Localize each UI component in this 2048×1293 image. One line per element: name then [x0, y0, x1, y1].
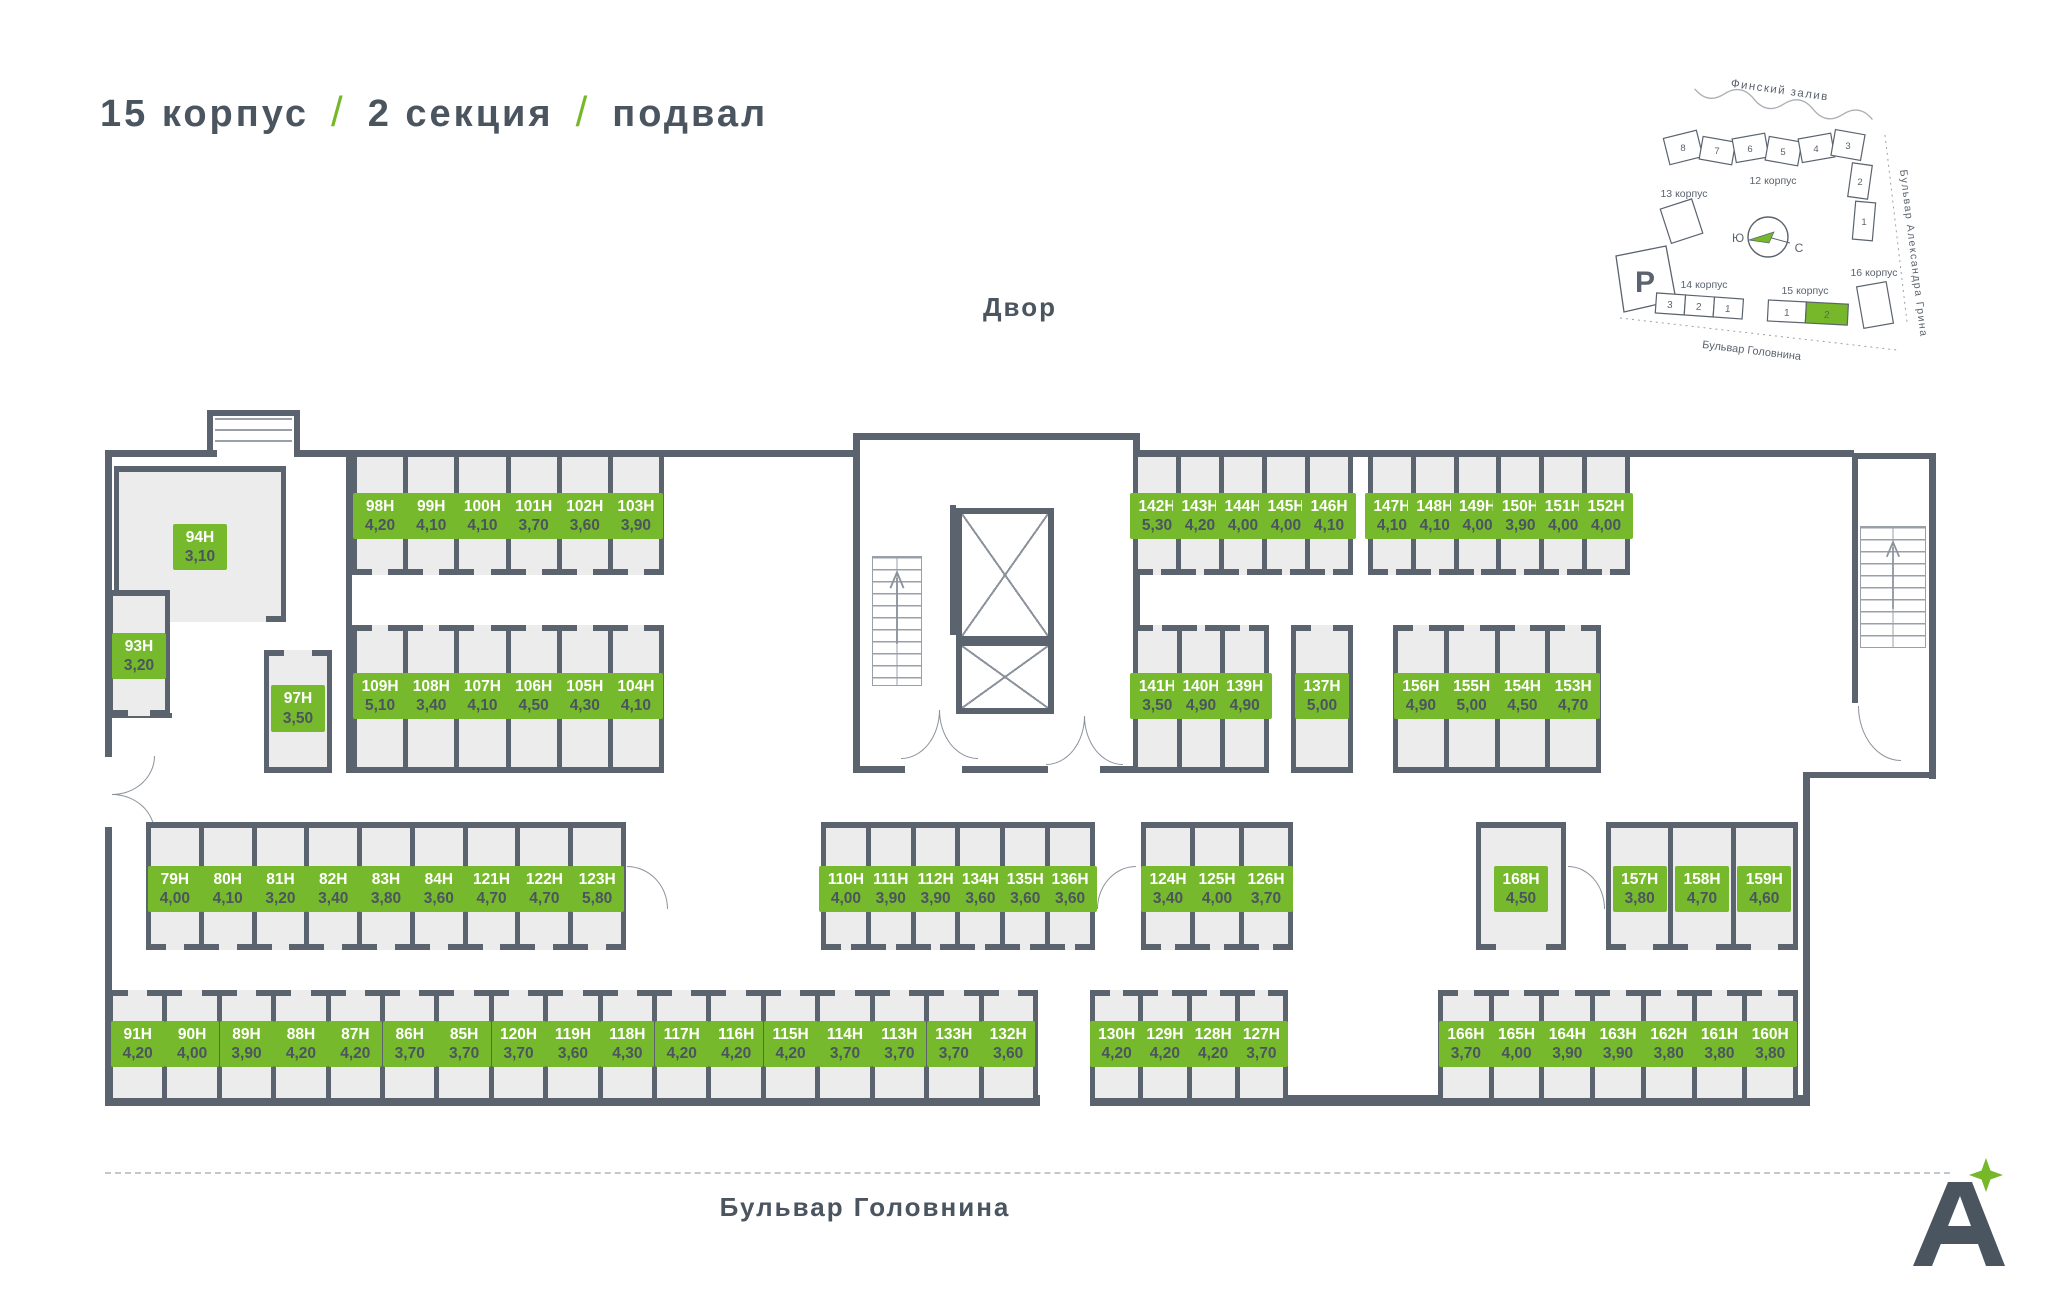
storage-room[interactable]: 101Н3,70 [511, 457, 562, 575]
door-arc [939, 710, 978, 759]
room-tag: 81Н3,20 [253, 866, 307, 913]
room-group-156-153: 156Н4,90155Н5,00154Н4,50153Н4,70 [1393, 625, 1601, 773]
storage-room[interactable]: 83Н3,80 [362, 828, 415, 950]
room-tag: 80Н4,10 [201, 866, 255, 913]
logo-letter-a [1913, 1182, 2005, 1266]
room-tag: 161Н3,80 [1692, 1021, 1746, 1068]
storage-room[interactable]: 90Н4,00 [167, 990, 221, 1098]
room-group-109-104: 109Н5,10108Н3,40107Н4,10106Н4,50105Н4,30… [352, 625, 664, 773]
storage-room[interactable]: 80Н4,10 [204, 828, 257, 950]
storage-room[interactable]: 79Н4,00 [151, 828, 204, 950]
room-group-124-126: 124Н3,40125Н4,00126Н3,70 [1141, 822, 1293, 950]
room-tag: 158Н4,70 [1675, 866, 1729, 913]
storage-room[interactable]: 139Н4,90 [1225, 625, 1264, 767]
room-tag: 86Н3,70 [383, 1021, 437, 1068]
title-floor: подвал [612, 93, 768, 135]
room-tag: 105Н4,30 [558, 673, 612, 720]
room-tag: 164Н3,90 [1540, 1021, 1594, 1068]
building-12-label: 12 корпус [1749, 175, 1796, 187]
storage-room[interactable]: 154Н4,50 [1500, 625, 1551, 767]
room-tag: 168Н4,50 [1494, 866, 1548, 913]
room-tag: 99Н4,10 [404, 493, 458, 540]
storage-room[interactable]: 109Н5,10 [357, 625, 408, 767]
room-tag: 128Н4,20 [1186, 1021, 1240, 1068]
developer-logo [1910, 1158, 2020, 1273]
door-arc [627, 866, 668, 909]
room-tag: 83Н3,80 [359, 866, 413, 913]
courtyard-label: Двор [955, 292, 1085, 323]
room-tag: 155Н5,00 [1445, 673, 1499, 720]
room-tag: 132Н3,60 [981, 1021, 1035, 1068]
vestibule-wall [207, 410, 300, 416]
wall-segment [1803, 778, 1810, 1105]
compass-south: Ю [1732, 231, 1744, 245]
building-14-label: 14 корпус [1680, 279, 1727, 291]
room-tag: 91Н4,20 [111, 1021, 165, 1068]
minimap-section-1-number: 1 [1784, 308, 1791, 319]
storage-room[interactable]: 119Н3,60 [548, 990, 602, 1098]
core-wall [860, 766, 905, 773]
storage-room[interactable]: 136Н3,60 [1050, 828, 1090, 950]
room-tag: 101Н3,70 [507, 493, 561, 540]
storage-room[interactable]: 114Н3,70 [820, 990, 874, 1098]
room-tag: 159Н4,60 [1737, 866, 1791, 913]
storage-room[interactable]: 102Н3,60 [562, 457, 613, 575]
room-tag: 107Н4,10 [455, 673, 509, 720]
storage-room[interactable]: 160Н3,80 [1747, 990, 1793, 1098]
room-group-79-123: 79Н4,0080Н4,1081Н3,2082Н3,4083Н3,8084Н3,… [146, 822, 626, 950]
room-tag: 115Н4,20 [764, 1021, 818, 1068]
storage-room[interactable]: 107Н4,10 [459, 625, 510, 767]
site-plan-minimap[interactable]: Финский залив 8 7 6 5 4 3 2 1 12 корпус … [1602, 60, 2038, 375]
room-group-142-146: 142Н5,30143Н4,20144Н4,00145Н4,00146Н4,10 [1133, 457, 1353, 575]
room-168: 168Н4,50 [1476, 822, 1566, 950]
core-wall [853, 433, 860, 773]
storage-room[interactable]: 124Н3,40 [1146, 828, 1195, 950]
room-tag: 98Н4,20 [353, 493, 407, 540]
svg-text:4: 4 [1813, 144, 1818, 155]
room-tag: 137Н5,00 [1295, 673, 1349, 720]
svg-text:8: 8 [1680, 143, 1685, 154]
room-tag: 136Н3,60 [1043, 866, 1097, 913]
room-tag: 113Н3,70 [872, 1021, 926, 1068]
room-tag: 82Н3,40 [306, 866, 360, 913]
street-dashed-line [105, 1172, 1950, 1174]
entrance-steps [215, 418, 292, 450]
storage-room[interactable]: 103Н3,90 [613, 457, 659, 575]
room-tag: 123Н5,80 [570, 866, 624, 913]
storage-room[interactable]: 100Н4,10 [459, 457, 510, 575]
room-tag: 160Н3,80 [1743, 1021, 1797, 1068]
storage-room[interactable]: 115Н4,20 [766, 990, 820, 1098]
title-separator: / [576, 88, 591, 135]
storage-room[interactable]: 116Н4,20 [711, 990, 765, 1098]
blvd-golovnina-minimap-label: Бульвар Головнина [1702, 339, 1803, 363]
door-arc [112, 756, 155, 795]
svg-text:3: 3 [1845, 141, 1850, 152]
storage-room[interactable]: 163Н3,90 [1595, 990, 1646, 1098]
floorplan-page: 15 корпус/2 секция/подвал Двор Финский з… [0, 0, 2048, 1293]
room-tag: 106Н4,50 [507, 673, 561, 720]
door-arc [1084, 716, 1123, 765]
room-tag: 103Н3,90 [609, 493, 663, 540]
street-label: Бульвар Головнина [640, 1192, 1090, 1223]
storage-room[interactable]: 123Н5,80 [573, 828, 621, 950]
storage-room[interactable]: 133Н3,70 [929, 990, 983, 1098]
storage-room[interactable]: 120Н3,70 [494, 990, 548, 1098]
building-13 [1660, 199, 1703, 243]
door-arc [901, 710, 940, 759]
building-14: 3 2 1 [1655, 293, 1743, 319]
storage-room[interactable]: 113Н3,70 [875, 990, 929, 1098]
svg-text:1: 1 [1861, 217, 1866, 228]
room-tag: 97Н3,50 [271, 685, 325, 732]
logo-star-icon [1969, 1158, 2003, 1192]
building-16-label: 16 корпус [1850, 267, 1897, 279]
door-arc [1097, 866, 1136, 909]
page-title: 15 корпус/2 секция/подвал [100, 88, 768, 136]
storage-room[interactable]: 118Н4,30 [603, 990, 657, 1098]
room-93: 93Н3,20 [108, 590, 170, 716]
storage-room[interactable]: 117Н4,20 [657, 990, 711, 1098]
parking-label: P [1635, 266, 1655, 299]
storage-room[interactable]: 121Н4,70 [468, 828, 521, 950]
room-tag: 127Н3,70 [1234, 1021, 1288, 1068]
room-tag: 154Н4,50 [1495, 673, 1549, 720]
svg-text:6: 6 [1747, 144, 1752, 155]
door-arc [1568, 866, 1605, 909]
storage-room[interactable]: 157Н3,80 [1611, 828, 1673, 950]
storage-room[interactable]: 152Н4,00 [1587, 457, 1625, 575]
stair-shaft-wall [1852, 453, 1935, 459]
storage-room[interactable]: 91Н4,20 [113, 990, 167, 1098]
minimap-section-2-number: 2 [1824, 310, 1831, 321]
storage-room[interactable]: 146Н4,10 [1310, 457, 1348, 575]
core-wall [962, 766, 1048, 773]
room-tag: 130Н4,20 [1090, 1021, 1144, 1068]
svg-text:2: 2 [1857, 177, 1862, 188]
storage-room[interactable]: 84Н3,60 [415, 828, 468, 950]
storage-room[interactable]: 89Н3,90 [222, 990, 276, 1098]
storage-room[interactable]: 98Н4,20 [357, 457, 408, 575]
right-staircase [1860, 526, 1926, 648]
room-group-110-136: 110Н4,00111Н3,90112Н3,90134Н3,60135Н3,60… [821, 822, 1095, 950]
room-tag: 139Н4,90 [1218, 673, 1272, 720]
room-tag: 85Н3,70 [437, 1021, 491, 1068]
room-97: 97Н3,50 [264, 650, 332, 773]
room-tag: 109Н5,10 [353, 673, 407, 720]
storage-room[interactable]: 129Н4,20 [1143, 990, 1191, 1098]
room-tag: 87Н4,20 [328, 1021, 382, 1068]
elevator-shaft [956, 508, 1054, 642]
room-group-98-103: 98Н4,2099Н4,10100Н4,10101Н3,70102Н3,6010… [352, 457, 664, 575]
room-tag: 122Н4,70 [517, 866, 571, 913]
storage-room[interactable]: 161Н3,80 [1697, 990, 1748, 1098]
storage-room[interactable]: 130Н4,20 [1095, 990, 1143, 1098]
wall-segment [105, 450, 217, 457]
room-tag: 102Н3,60 [558, 493, 612, 540]
storage-room[interactable]: 81Н3,20 [257, 828, 310, 950]
storage-room[interactable]: 164Н3,90 [1544, 990, 1595, 1098]
building-16 [1857, 282, 1894, 329]
room-tag: 156Н4,90 [1394, 673, 1448, 720]
building-15-label: 15 корпус [1781, 285, 1828, 297]
room-tag: 119Н3,60 [546, 1021, 600, 1068]
room-tag: 88Н4,20 [274, 1021, 328, 1068]
room-tag: 104Н4,10 [609, 673, 663, 720]
storage-room[interactable]: 166Н3,70 [1443, 990, 1494, 1098]
room-group-130-127: 130Н4,20129Н4,20128Н4,20127Н3,70 [1090, 990, 1288, 1098]
vestibule-wall [207, 410, 213, 457]
room-group-166-160: 166Н3,70165Н4,00164Н3,90163Н3,90162Н3,80… [1438, 990, 1798, 1098]
room-tag: 93Н3,20 [112, 633, 166, 680]
storage-room[interactable]: 153Н4,70 [1550, 625, 1596, 767]
blvd-grina-label: Бульвар Александра Грина [1897, 169, 1930, 338]
room-tag: 100Н4,10 [455, 493, 509, 540]
storage-room[interactable]: 86Н3,70 [385, 990, 439, 1098]
storage-room[interactable]: 155Н5,00 [1449, 625, 1500, 767]
storage-room[interactable]: 93Н3,20 [113, 596, 165, 716]
room-group-91-132: 91Н4,2090Н4,0089Н3,9088Н4,2087Н4,2086Н3,… [108, 990, 1038, 1098]
storage-room[interactable]: 99Н4,10 [408, 457, 459, 575]
storage-room[interactable]: 132Н3,60 [984, 990, 1033, 1098]
building-13-label: 13 корпус [1660, 188, 1707, 200]
storage-room[interactable]: 168Н4,50 [1481, 828, 1561, 950]
core-wall [853, 433, 1140, 440]
storage-room[interactable]: 165Н4,00 [1494, 990, 1545, 1098]
gulf-label: Финский залив [1730, 78, 1829, 104]
room-tag: 117Н4,20 [655, 1021, 709, 1068]
storage-room[interactable]: 106Н4,50 [511, 625, 562, 767]
room-group-147-152: 147Н4,10148Н4,10149Н4,00150Н3,90151Н4,00… [1368, 457, 1630, 575]
room-tag: 152Н4,00 [1579, 493, 1633, 540]
door-arc [1858, 706, 1901, 761]
elevator-shaft [956, 640, 1054, 714]
svg-text:7: 7 [1714, 146, 1719, 157]
room-tag: 153Н4,70 [1546, 673, 1600, 720]
wall-segment [1803, 772, 1936, 778]
room-tag: 124Н3,40 [1141, 866, 1195, 913]
room-group-141-139: 141Н3,50140Н4,90139Н4,90 [1133, 625, 1269, 773]
storage-room[interactable]: 162Н3,80 [1646, 990, 1697, 1098]
room-tag: 94Н3,10 [173, 524, 227, 571]
storage-room[interactable]: 137Н5,00 [1296, 625, 1348, 767]
storage-room[interactable]: 85Н3,70 [439, 990, 493, 1098]
room-tag: 114Н3,70 [818, 1021, 872, 1068]
room-137: 137Н5,00 [1291, 625, 1353, 773]
title-section: 2 секция [368, 93, 554, 135]
storage-room[interactable]: 122Н4,70 [520, 828, 573, 950]
vestibule-wall [294, 410, 300, 457]
room-tag: 118Н4,30 [600, 1021, 654, 1068]
title-building: 15 корпус [100, 93, 309, 135]
wall-segment [1137, 450, 1854, 457]
room-tag: 79Н4,00 [148, 866, 202, 913]
storage-room[interactable]: 97Н3,50 [269, 650, 327, 767]
compass: Ю С [1732, 217, 1804, 257]
storage-room[interactable]: 128Н4,20 [1192, 990, 1240, 1098]
room-tag: 121Н4,70 [465, 866, 519, 913]
room-tag: 163Н3,90 [1591, 1021, 1645, 1068]
room-tag: 89Н3,90 [220, 1021, 274, 1068]
room-tag: 133Н3,70 [927, 1021, 981, 1068]
svg-text:5: 5 [1780, 147, 1785, 158]
storage-room[interactable]: 156Н4,90 [1398, 625, 1449, 767]
room-tag: 90Н4,00 [165, 1021, 219, 1068]
room-tag: 166Н3,70 [1439, 1021, 1493, 1068]
storage-room[interactable]: 104Н4,10 [613, 625, 659, 767]
wall-segment [294, 450, 860, 457]
room-tag: 162Н3,80 [1642, 1021, 1696, 1068]
wall-segment [1929, 453, 1936, 779]
room-group-157-159: 157Н3,80158Н4,70159Н4,60 [1606, 822, 1798, 950]
room-tag: 125Н4,00 [1190, 866, 1244, 913]
room-tag: 165Н4,00 [1490, 1021, 1544, 1068]
storage-room[interactable]: 158Н4,70 [1673, 828, 1735, 950]
compass-north: С [1795, 241, 1804, 255]
room-tag: 157Н3,80 [1613, 866, 1667, 913]
storage-room[interactable]: 108Н3,40 [408, 625, 459, 767]
room-tag: 116Н4,20 [709, 1021, 763, 1068]
storage-room[interactable]: 88Н4,20 [276, 990, 330, 1098]
door-arc [1046, 716, 1085, 765]
storage-room[interactable]: 127Н3,70 [1240, 990, 1283, 1098]
room-tag: 126Н3,70 [1239, 866, 1293, 913]
room-tag: 120Н3,70 [492, 1021, 546, 1068]
storage-room[interactable]: 82Н3,40 [309, 828, 362, 950]
room-tag: 129Н4,20 [1138, 1021, 1192, 1068]
storage-room[interactable]: 105Н4,30 [562, 625, 613, 767]
storage-room[interactable]: 126Н3,70 [1244, 828, 1288, 950]
room-tag: 108Н3,40 [404, 673, 458, 720]
title-separator: / [331, 88, 346, 135]
storage-room[interactable]: 87Н4,20 [331, 990, 385, 1098]
room-tag: 84Н3,60 [412, 866, 466, 913]
stair-shaft-wall [1852, 453, 1858, 703]
core-staircase [872, 556, 922, 686]
storage-room[interactable]: 125Н4,00 [1195, 828, 1244, 950]
room-tag: 146Н4,10 [1302, 493, 1356, 540]
storage-room[interactable]: 159Н4,60 [1736, 828, 1793, 950]
